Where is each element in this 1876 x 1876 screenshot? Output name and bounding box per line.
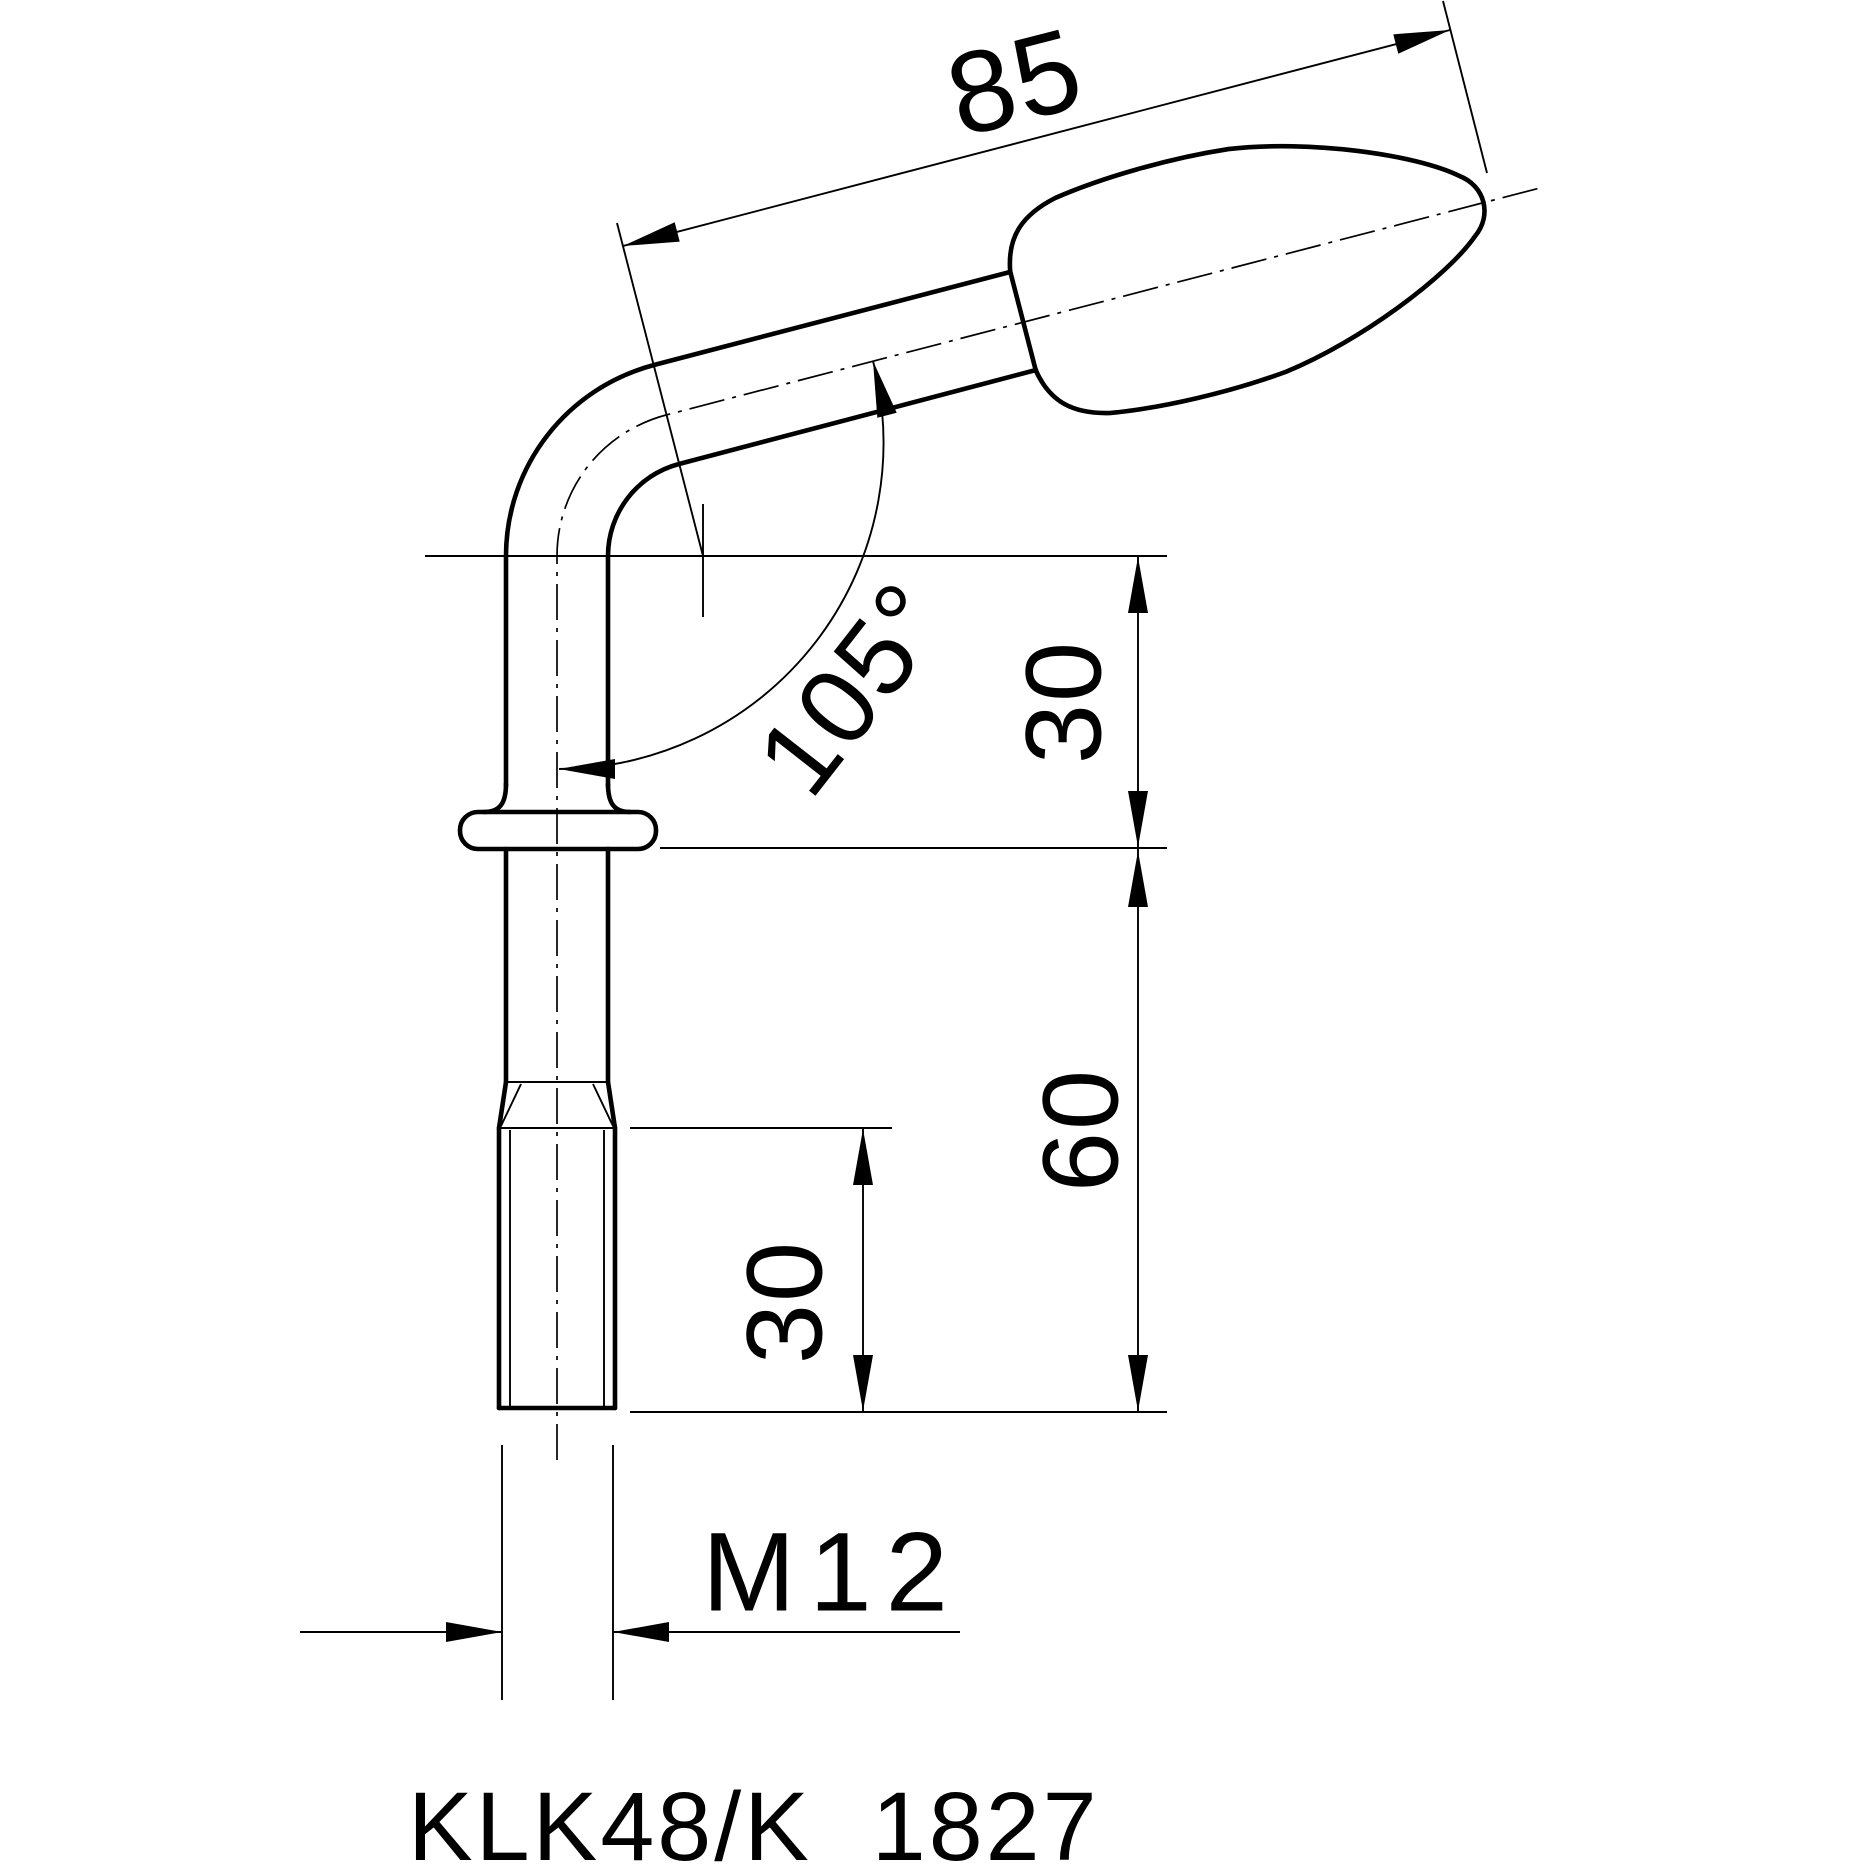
- part-centerline: [557, 188, 1540, 1460]
- dim30-thread-arrow-up: [853, 1129, 873, 1185]
- dim85-text: 85: [934, 2, 1095, 161]
- dimM12-text: M12: [702, 1510, 962, 1635]
- dim30-top-arrow-up: [1128, 557, 1148, 613]
- dim30-thread-text: 30: [724, 1240, 845, 1364]
- centerline-group: [557, 188, 1540, 1460]
- knob-outline: [993, 87, 1513, 435]
- dim85-extension-near: [617, 223, 703, 556]
- dim105-text: 105°: [733, 560, 971, 817]
- dim85-arrow-right: [1393, 20, 1452, 53]
- dim30-thread-arrow-down: [853, 1355, 873, 1411]
- drawing-page: 85 105° 30 60 30 M12 KLK48/K 1827: [0, 0, 1876, 1876]
- dimension-text-group: 85 105° 30 60 30 M12: [702, 2, 1140, 1634]
- part-number-label: KLK48/K 1827: [408, 1772, 1100, 1876]
- collar: [460, 812, 656, 849]
- dimM12-arrow-left: [613, 1622, 669, 1642]
- dim60-arrow-up: [1128, 851, 1148, 907]
- part-outline-group: [460, 87, 1513, 1408]
- dim60-text: 60: [1020, 1068, 1141, 1192]
- knob-transform: [993, 87, 1513, 435]
- dimM12-arrow-right: [446, 1622, 502, 1642]
- dim30-top-text: 30: [1003, 640, 1124, 764]
- dim30-top-arrow-down: [1128, 791, 1148, 847]
- collar-fillet-left: [484, 784, 506, 812]
- collar-fillet-right: [608, 784, 630, 812]
- technical-drawing-canvas: 85 105° 30 60 30 M12 KLK48/K 1827: [0, 0, 1876, 1876]
- arrowheads-group: [446, 20, 1453, 1642]
- dim85-arrow-left: [620, 222, 679, 255]
- dim85-extension-far: [1443, 1, 1487, 173]
- dim60-arrow-down: [1128, 1355, 1148, 1411]
